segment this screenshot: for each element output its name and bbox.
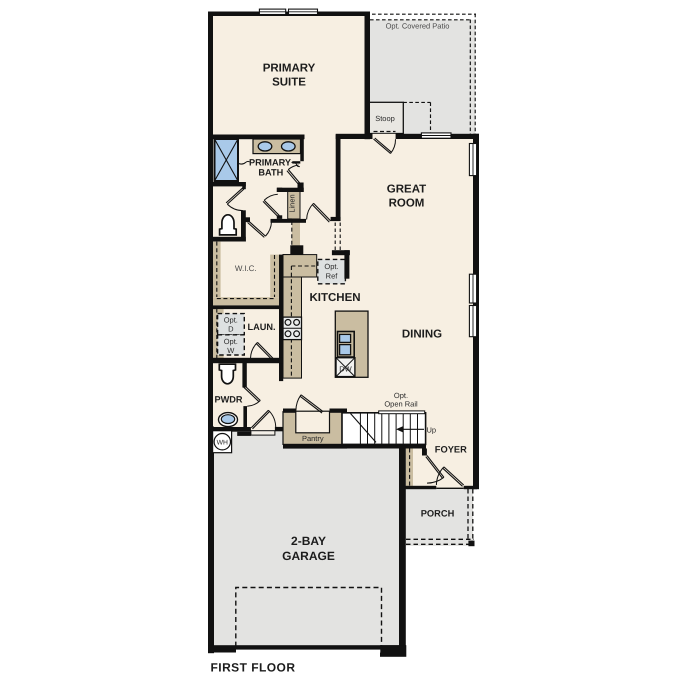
svg-text:GARAGE: GARAGE <box>282 549 335 563</box>
svg-text:FIRST FLOOR: FIRST FLOOR <box>211 660 296 674</box>
svg-text:KITCHEN: KITCHEN <box>309 292 360 304</box>
svg-text:SUITE: SUITE <box>272 76 306 88</box>
svg-text:WH: WH <box>217 439 228 446</box>
svg-text:Open Rail: Open Rail <box>384 400 418 409</box>
svg-text:Pantry: Pantry <box>302 434 324 443</box>
svg-text:W: W <box>227 346 235 355</box>
svg-text:Ref: Ref <box>326 272 339 281</box>
svg-text:PRIMARY: PRIMARY <box>249 158 291 168</box>
svg-text:GREAT: GREAT <box>387 184 426 196</box>
svg-text:ROOM: ROOM <box>389 198 425 210</box>
svg-text:LAUN.: LAUN. <box>247 322 275 332</box>
svg-text:Opt.: Opt. <box>224 316 238 325</box>
svg-text:FOYER: FOYER <box>435 444 467 454</box>
svg-text:2-BAY: 2-BAY <box>291 534 326 548</box>
svg-text:W.I.C.: W.I.C. <box>235 264 257 273</box>
svg-text:Opt.: Opt. <box>224 337 238 346</box>
svg-text:Up: Up <box>427 425 437 434</box>
svg-text:Linen: Linen <box>288 194 297 212</box>
svg-text:DINING: DINING <box>402 329 442 341</box>
svg-text:D: D <box>228 325 234 334</box>
svg-text:PORCH: PORCH <box>421 509 455 519</box>
svg-text:PRIMARY: PRIMARY <box>263 62 316 74</box>
svg-text:Opt.: Opt. <box>324 262 338 271</box>
svg-text:BATH: BATH <box>258 168 283 178</box>
svg-text:DW: DW <box>339 364 352 373</box>
svg-text:Opt. Covered Patio: Opt. Covered Patio <box>386 22 450 31</box>
svg-text:Stoop: Stoop <box>375 114 395 123</box>
svg-text:PWDR: PWDR <box>214 395 242 405</box>
